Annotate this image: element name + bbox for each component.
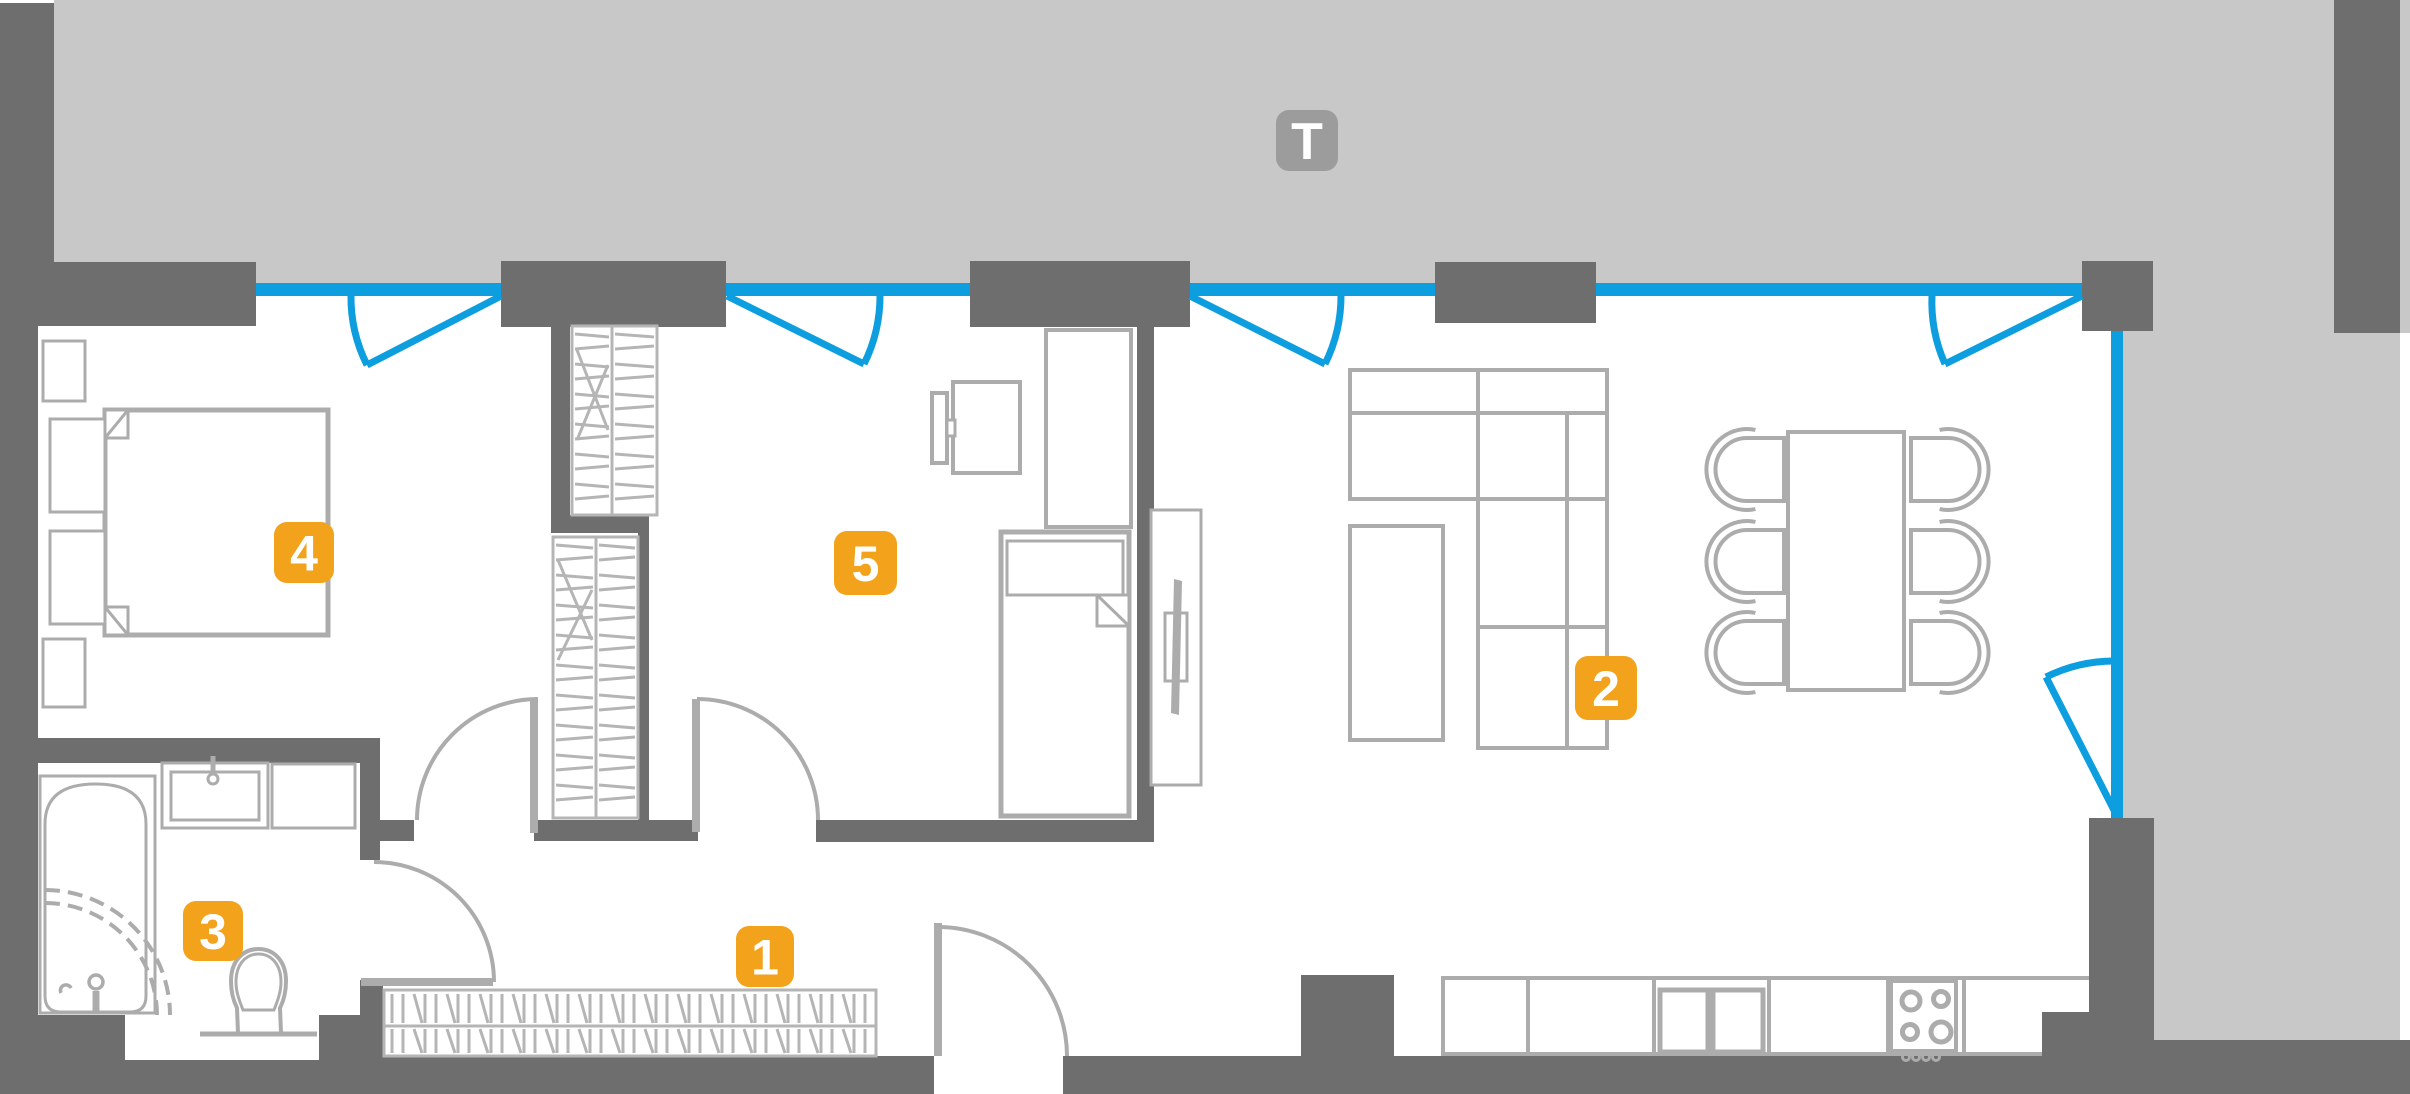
svg-text:3: 3: [199, 904, 227, 960]
svg-text:1: 1: [751, 930, 779, 986]
svg-text:4: 4: [290, 526, 318, 582]
svg-text:T: T: [1291, 113, 1323, 171]
svg-text:2: 2: [1592, 661, 1620, 717]
svg-text:5: 5: [852, 536, 880, 592]
